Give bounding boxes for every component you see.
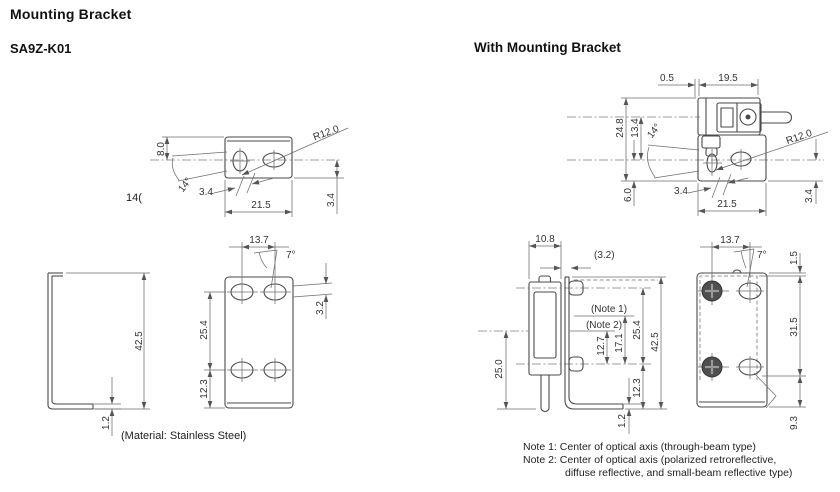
stray-label: 14( xyxy=(126,192,142,204)
dim-bracket-top-radius: R12.0 xyxy=(312,124,341,144)
right-section-title: With Mounting Bracket xyxy=(474,40,621,55)
dim-assembly-front-angle: 7° xyxy=(757,250,767,261)
note1-label: (Note 1) xyxy=(591,304,627,315)
dim-assembly-side-hole-pitch: 25.4 xyxy=(632,320,643,340)
dim-bracket-side-height: 42.5 xyxy=(134,331,145,351)
dim-assembly-side-hole-to-bottom: 12.3 xyxy=(632,378,643,398)
dim-assembly-side-axis1-to-hole: 17.1 xyxy=(614,333,625,353)
dim-assembly-side-axis-to-bottom: 25.0 xyxy=(494,359,505,379)
cable-top xyxy=(760,112,792,123)
dim-bracket-front-width: 13.7 xyxy=(249,235,269,246)
dim-bracket-top-hole-pitch: 3.4 xyxy=(199,187,213,198)
dim-assembly-top-gap: 0.5 xyxy=(660,73,674,84)
note-2-line-2: diffuse reflective, and small-beam refle… xyxy=(565,467,792,480)
dim-bracket-front-offset: 3.2 xyxy=(315,301,326,315)
slot-holes-front xyxy=(736,280,764,379)
adjuster-screw xyxy=(539,276,551,282)
dim-assembly-front-top-gap: 1.5 xyxy=(789,251,800,265)
note-2-line-1: Note 2: Center of optical axis (polarize… xyxy=(523,454,792,467)
dim-bracket-top-width: 21.5 xyxy=(251,200,271,211)
dim-bracket-top-angle: 14° xyxy=(176,176,194,195)
bracket-side-outline xyxy=(48,273,93,409)
mounting-screw-top xyxy=(698,277,729,305)
dim-assembly-top-hole-pitch: 3.4 xyxy=(674,186,688,197)
material-note: (Material: Stainless Steel) xyxy=(121,430,246,442)
technical-drawing-canvas: 8.0 14° 3.4 21.5 R12.0 3.4 42.5 1.2 xyxy=(0,0,840,492)
bracket-side-dim-lines xyxy=(66,273,150,436)
bracket-front-dim-lines xyxy=(204,242,332,408)
assembly-top-dim-lines xyxy=(621,79,828,216)
bracket-on-top-outline xyxy=(698,135,766,181)
dim-assembly-front-width: 13.7 xyxy=(720,235,740,246)
bracket-top-view: 8.0 14° 3.4 21.5 R12.0 3.4 xyxy=(150,124,348,217)
assembly-front-view: 13.7 7° 1.5 31.5 9.3 xyxy=(697,235,806,430)
dim-bracket-side-thickness: 1.2 xyxy=(101,416,112,430)
dim-bracket-front-pitch-lower: 12.3 xyxy=(199,379,210,399)
dim-assembly-front-bottom: 9.3 xyxy=(789,416,800,430)
dim-bracket-front-angle: 7° xyxy=(286,250,296,261)
notes-block: Note 1: Center of optical axis (through-… xyxy=(523,441,792,480)
model-number: SA9Z-K01 xyxy=(10,41,71,56)
assembly-side-view: 10.8 (3.2) (Note 1) (Note 2) 12.7 17.1 2… xyxy=(478,234,667,434)
dim-assembly-top-height-lower: 6.0 xyxy=(623,188,634,202)
mounting-screw-bottom xyxy=(698,353,729,381)
bracket-front-view: 13.7 7° 25.4 12.3 3.2 xyxy=(199,235,332,408)
connector-screw-dot xyxy=(746,115,751,120)
sensor-side-outline xyxy=(529,276,561,412)
dim-assembly-top-angle: 14° xyxy=(645,122,663,141)
page-title: Mounting Bracket xyxy=(10,6,131,22)
dim-assembly-side-thickness: 1.2 xyxy=(617,414,628,428)
sensor-top-outline xyxy=(698,98,792,135)
dim-assembly-side-plate-ref: (3.2) xyxy=(594,250,615,261)
dim-bracket-top-height: 8.0 xyxy=(156,142,167,156)
dim-assembly-top-sensor-width: 19.5 xyxy=(718,73,738,84)
dim-assembly-top-width: 21.5 xyxy=(717,199,737,210)
dim-assembly-side-sensor-depth: 10.8 xyxy=(535,234,555,245)
assembly-top-view: 0.5 19.5 24.8 13.4 14° 6.0 3.4 21.5 R12.… xyxy=(567,73,828,216)
dim-assembly-top-radius: R12.0 xyxy=(785,128,814,147)
dim-assembly-front-sensor-height: 31.5 xyxy=(789,317,800,337)
note-1: Note 1: Center of optical axis (through-… xyxy=(523,441,792,454)
dim-bracket-front-pitch-upper: 25.4 xyxy=(199,320,210,340)
dim-bracket-top-offset: 3.4 xyxy=(326,193,337,207)
dim-assembly-side-axis2-to-hole: 12.7 xyxy=(596,336,607,356)
cable-side xyxy=(541,408,549,412)
dim-assembly-top-height-total: 24.8 xyxy=(615,118,626,138)
dim-assembly-top-height-axis: 13.4 xyxy=(630,118,641,138)
dim-assembly-side-height: 42.5 xyxy=(650,332,661,352)
dim-assembly-top-offset: 3.4 xyxy=(804,189,815,203)
bracket-front-outline xyxy=(225,277,293,408)
note2-label: (Note 2) xyxy=(586,320,622,331)
bracket-side-view: 42.5 1.2 xyxy=(48,273,150,436)
